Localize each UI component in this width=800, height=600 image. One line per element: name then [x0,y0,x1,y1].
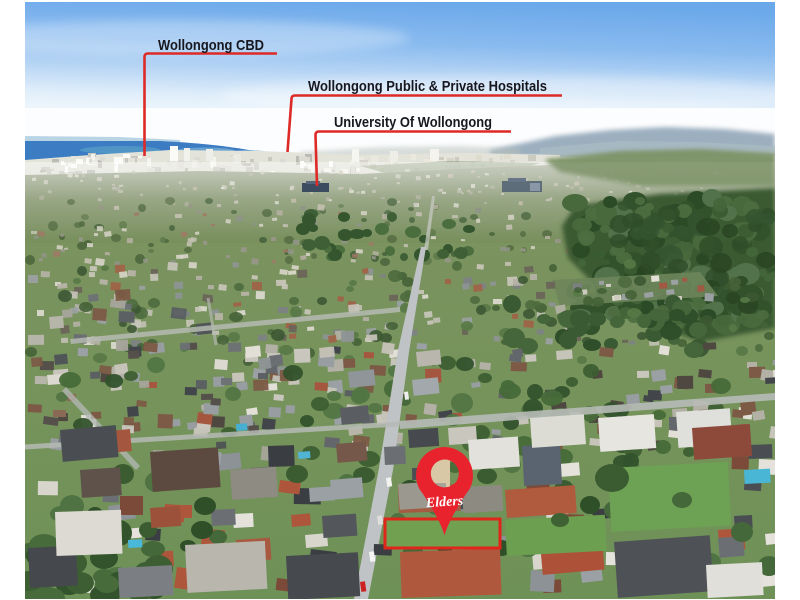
svg-text:Wollongong CBD: Wollongong CBD [158,37,264,54]
svg-text:University Of Wollongong: University Of Wollongong [334,114,492,131]
svg-text:Elders: Elders [424,494,464,512]
svg-text:Wollongong Public & Private Ho: Wollongong Public & Private Hospitals [308,78,547,95]
